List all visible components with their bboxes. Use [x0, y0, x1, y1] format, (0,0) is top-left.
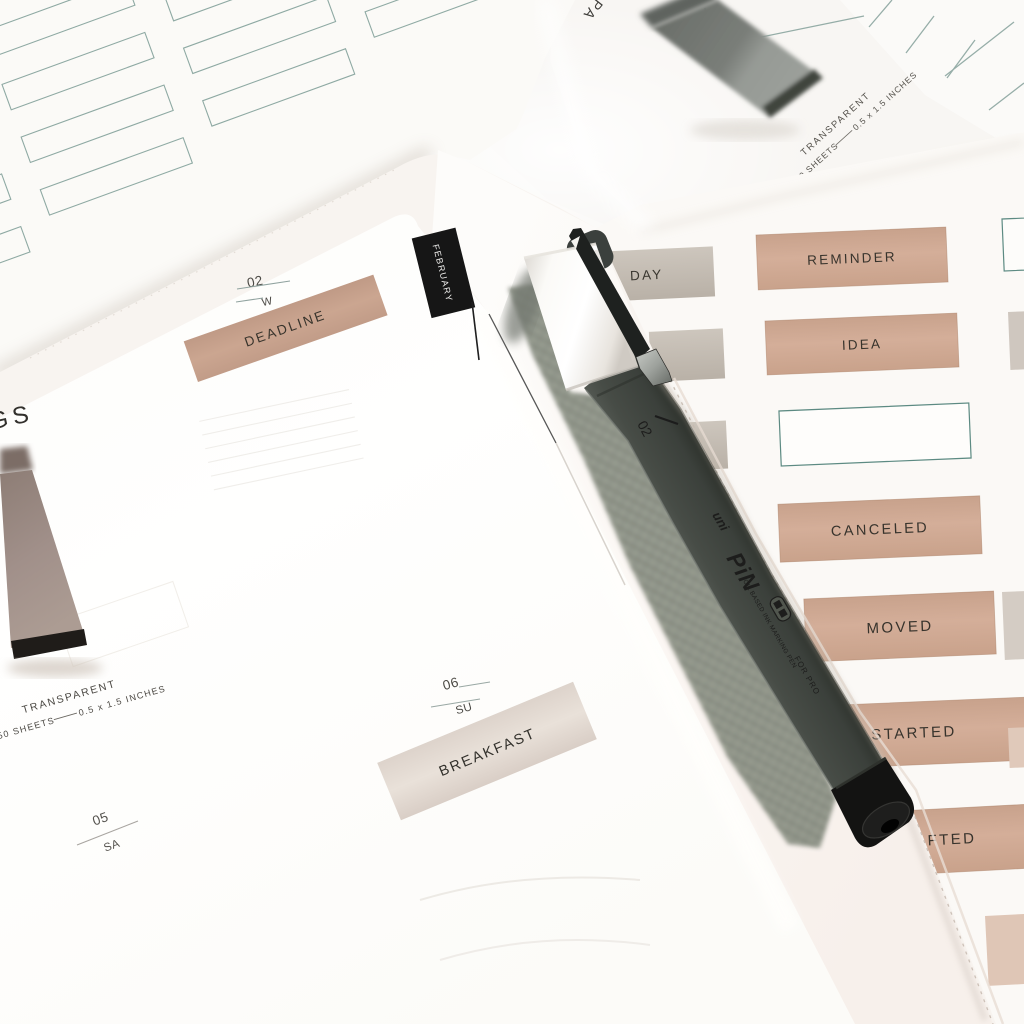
svg-text:STARTED: STARTED — [871, 723, 957, 744]
svg-text:IDEA: IDEA — [842, 336, 883, 353]
svg-text:MOVED: MOVED — [866, 618, 934, 638]
svg-text:DAY: DAY — [630, 267, 664, 284]
